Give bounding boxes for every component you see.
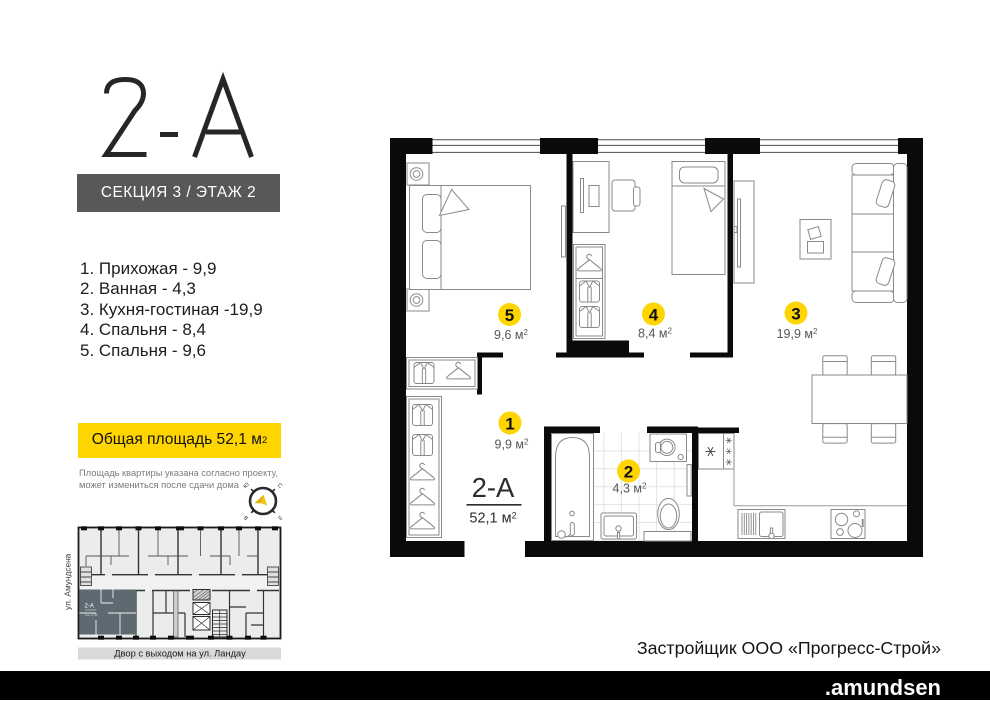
svg-text:4: 4 (649, 305, 659, 324)
svg-text:9,6 м2: 9,6 м2 (494, 328, 528, 342)
svg-text:1: 1 (505, 414, 514, 433)
svg-text:52,1 м: 52,1 м (85, 612, 98, 617)
svg-text:З: З (276, 514, 283, 521)
svg-text:2-А: 2-А (85, 604, 94, 610)
svg-text:С: С (276, 483, 283, 490)
svg-text:Двор с выходом на ул. Ландау: Двор с выходом на ул. Ландау (114, 649, 246, 659)
svg-text:19,9 м2: 19,9 м2 (777, 327, 818, 341)
svg-text:4,3 м2: 4,3 м2 (613, 482, 647, 496)
svg-text:2: 2 (624, 462, 633, 481)
svg-text:ул. Амундсена: ул. Амундсена (63, 553, 73, 610)
svg-text:52,1 м2: 52,1 м2 (469, 511, 516, 527)
svg-text:9,9 м2: 9,9 м2 (495, 438, 529, 452)
svg-text:В: В (243, 514, 250, 521)
svg-text:Ю: Ю (243, 482, 251, 490)
svg-text:3: 3 (791, 304, 800, 323)
svg-text:2-А: 2-А (472, 472, 515, 503)
svg-text:8,4 м2: 8,4 м2 (638, 327, 672, 341)
svg-text:5: 5 (505, 306, 514, 325)
